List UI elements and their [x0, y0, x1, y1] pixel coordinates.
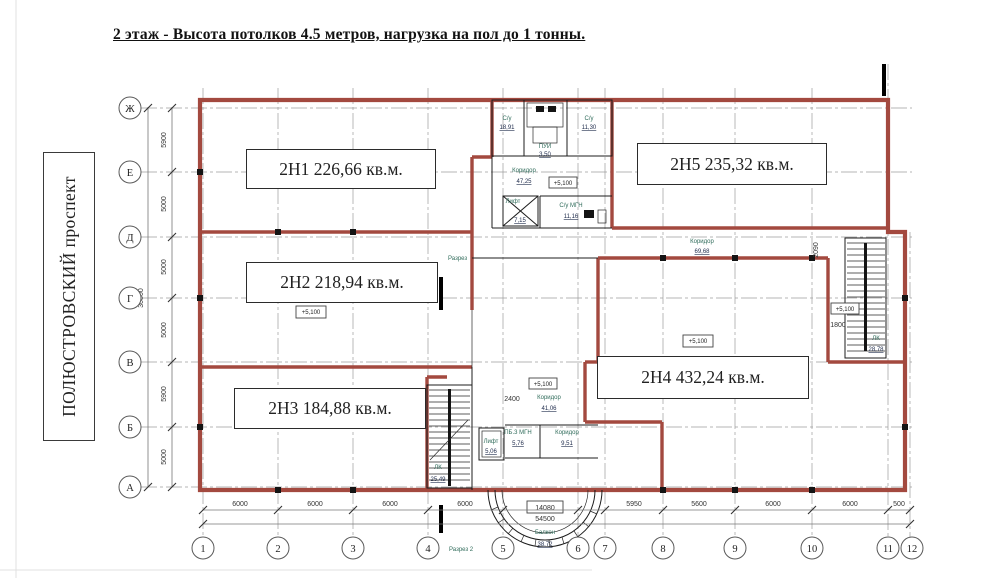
elevation-mark: +5,100: [302, 310, 321, 316]
row-axis-label: В: [126, 358, 133, 369]
col-dim: 5600: [691, 501, 707, 508]
col-axis-label: 2: [275, 544, 280, 555]
room-area: 47,25: [516, 179, 532, 185]
col-axis-label: 7: [602, 544, 607, 555]
room-name: Лифт: [484, 439, 499, 445]
col-axis-label: 8: [660, 544, 665, 555]
room-area: 28,78: [868, 347, 884, 353]
col-dim: 6000: [307, 501, 323, 508]
row-dim: 5900: [161, 386, 168, 402]
floor-plan-svg: Разрез Разрез 2 +5,100 +5,100 +5,100 +5,…: [0, 0, 987, 578]
room-area: 11,16: [564, 214, 579, 220]
elevation-mark: +5,100: [534, 382, 553, 388]
elevation-mark: +5,100: [554, 181, 573, 187]
col-dim: 6000: [382, 501, 398, 508]
col-axis-label: 12: [907, 544, 918, 555]
room-area: 11,30: [582, 125, 597, 131]
col-axis-bubbles: 1 2 3 4 5 6 7 8 9 10 11 12: [192, 537, 923, 559]
row-dim: 5000: [161, 196, 168, 212]
col-axis-label: 4: [425, 544, 431, 555]
room-area: 5,06: [485, 449, 497, 455]
col-dim: 6000: [457, 501, 473, 508]
room-name: ПБ.3 МГН: [504, 430, 532, 436]
section-label-1: Разрез: [448, 256, 467, 262]
room-area: 5,76: [512, 441, 524, 447]
col-total-dim: 54500: [535, 516, 555, 523]
row-dim: 5000: [161, 449, 168, 465]
room-area: 18,91: [499, 125, 515, 131]
col-axis-label: 9: [732, 544, 737, 555]
section-label-2: Разрез 2: [449, 547, 474, 553]
col-dim: 5950: [626, 501, 642, 508]
unit-label-2n5: 2Н5 235,32 кв.м.: [637, 143, 827, 185]
row-dim: 5900: [161, 132, 168, 148]
dim-14080: 14080: [535, 505, 555, 512]
floor-plan-page: 2 этаж - Высота потолков 4.5 метров, наг…: [0, 0, 987, 578]
room-area: 25,49: [430, 477, 446, 483]
room-name: Коридор: [537, 395, 561, 401]
col-dim: 6000: [232, 501, 248, 508]
room-area: 69,68: [694, 249, 710, 255]
row-axis-label: Б: [127, 423, 133, 434]
col-dim: 6000: [765, 501, 781, 508]
col-axis-label: 6: [575, 544, 580, 555]
room-area: 38,72: [537, 542, 553, 548]
col-axis-label: 3: [350, 544, 355, 555]
room-name: ПУИ: [539, 144, 551, 150]
room-name: Лифт: [506, 199, 521, 205]
row-dim: 5000: [161, 322, 168, 338]
row-dim: 5000: [161, 259, 168, 275]
col-axis-label: 10: [807, 544, 818, 555]
row-axis-label: А: [126, 483, 134, 494]
dim-1800: 1800: [830, 322, 846, 329]
unit-label-2n3: 2Н3 184,88 кв.м.: [234, 388, 426, 429]
room-area: 7,15: [514, 218, 526, 224]
room-area: 41,06: [541, 406, 557, 412]
row-axis-label: Е: [127, 168, 133, 179]
room-name: ЛК: [872, 336, 880, 342]
col-dim: 6000: [842, 501, 858, 508]
col-dim: 500: [893, 501, 905, 508]
row-axis-label: Ж: [125, 104, 135, 115]
row-axis-label: Д: [126, 233, 133, 244]
col-axis-label: 11: [883, 544, 893, 555]
col-axis-label: 5: [500, 544, 505, 555]
dim-2090: 2090: [813, 242, 820, 258]
room-name: С/у: [503, 116, 512, 122]
room-name: Коридор: [690, 239, 714, 245]
dim-2400: 2400: [504, 396, 520, 403]
unit-label-2n4: 2Н4 432,24 кв.м.: [597, 356, 809, 399]
elevation-mark: +5,100: [689, 339, 708, 345]
elevation-mark: +5,100: [836, 307, 855, 313]
col-axis-label: 1: [200, 544, 205, 555]
row-axis-bubbles: Ж Е Д Г В Б А: [119, 97, 141, 498]
room-area: 3,50: [539, 152, 551, 158]
room-area: 9,51: [561, 441, 573, 447]
row-axis-label: Г: [127, 294, 133, 305]
room-name: ЛК: [434, 465, 442, 471]
room-name: Коридор: [512, 168, 536, 174]
unit-label-2n2: 2Н2 218,94 кв.м.: [246, 262, 438, 303]
unit-label-2n1: 2Н1 226,66 кв.м.: [246, 149, 436, 189]
room-name: Балкон: [535, 530, 555, 536]
room-name: С/у: [585, 116, 594, 122]
room-name: Коридор: [555, 430, 579, 436]
room-name: С/у МГН: [559, 203, 582, 209]
